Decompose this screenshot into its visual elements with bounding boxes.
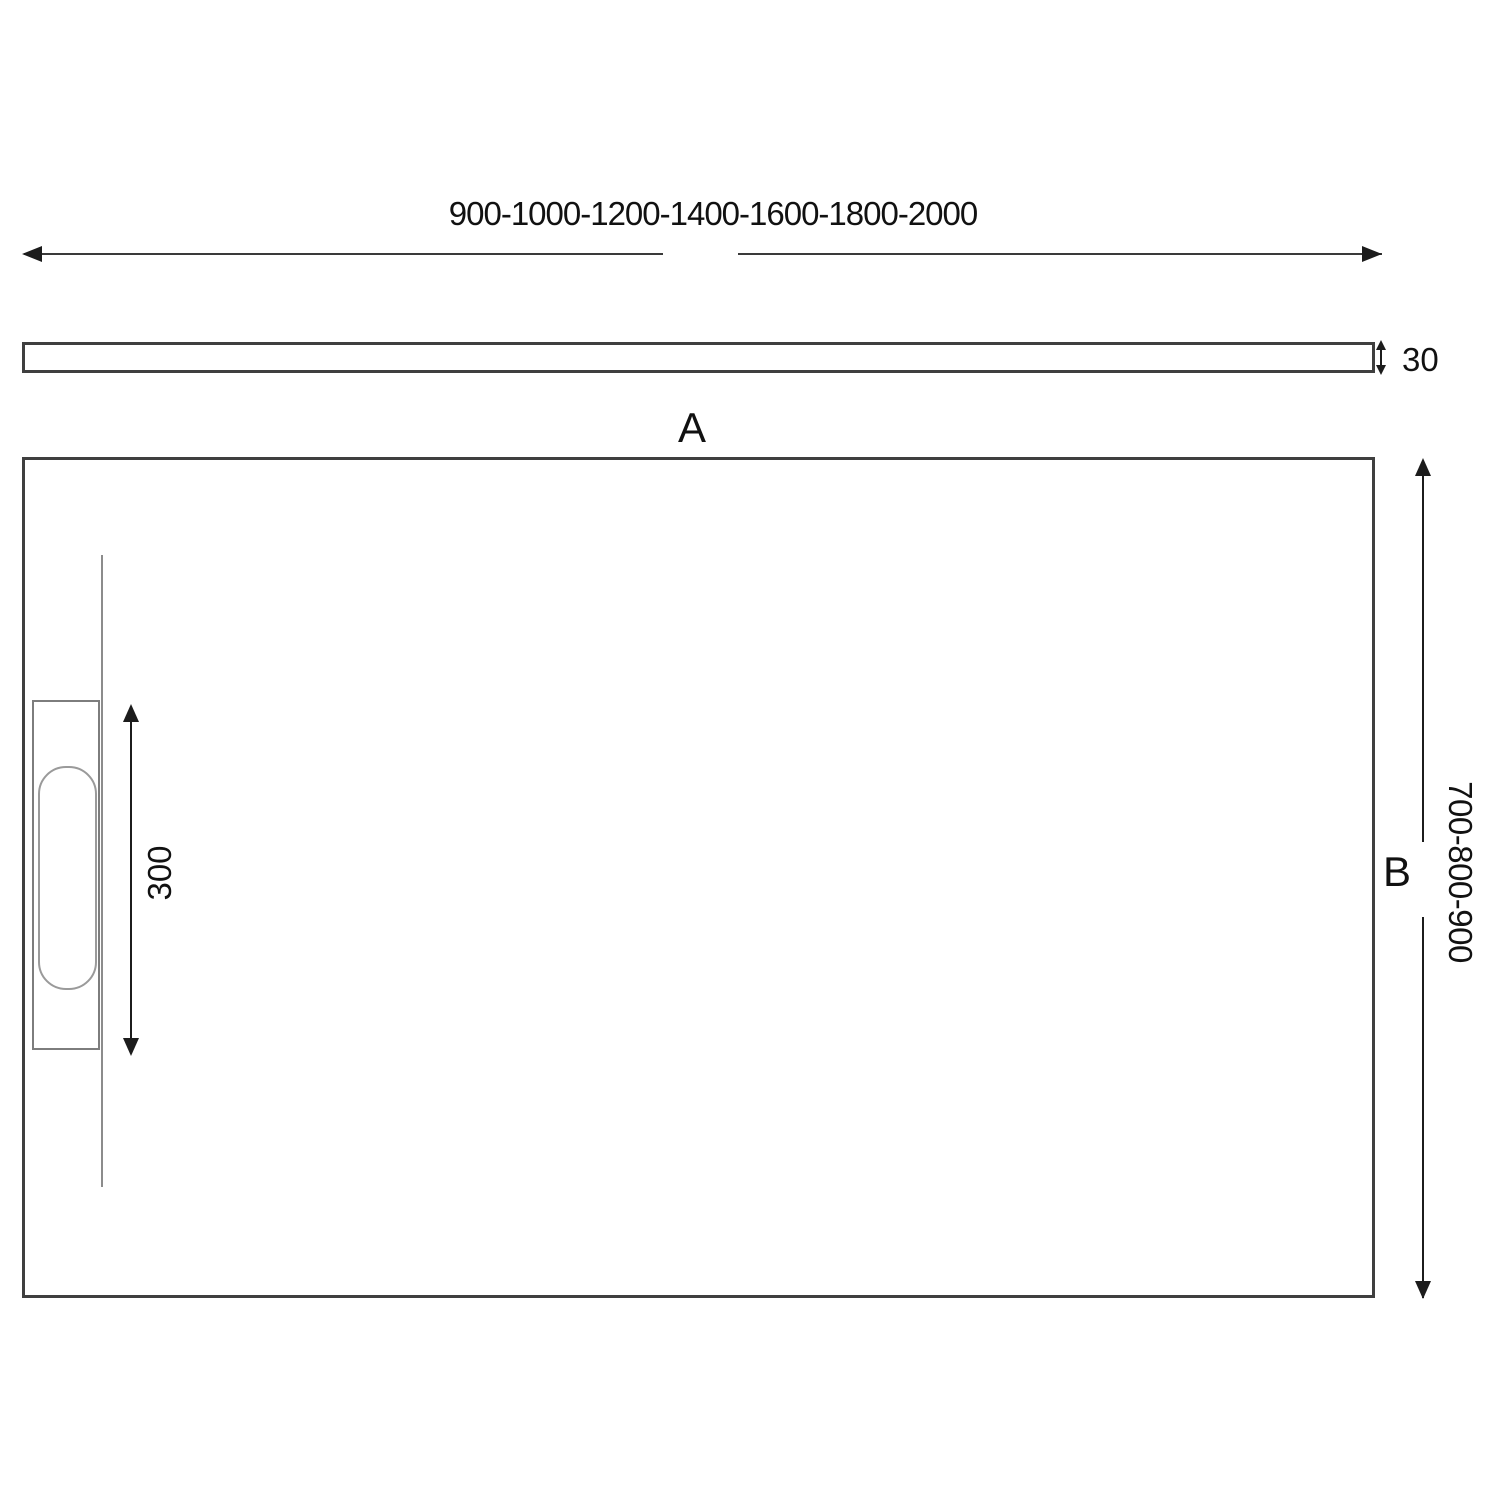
width-dimension-line-bottom-segment	[1422, 917, 1424, 1298]
drain-length-arrow-down-icon	[123, 1038, 139, 1056]
width-arrow-up-icon	[1415, 458, 1431, 476]
length-options-label: 900-1000-1200-1400-1600-1800-2000	[449, 195, 977, 233]
width-dimension-line-top-segment	[1422, 461, 1424, 842]
drain-length-dimension-line	[130, 720, 132, 1040]
thickness-arrow-up-icon	[1376, 340, 1386, 350]
shower-tray-dimension-diagram: 900-1000-1200-1400-1600-1800-2000 30 A 3…	[0, 0, 1500, 1500]
view-b-label: B	[1383, 848, 1411, 896]
drain-slot	[38, 766, 97, 990]
length-dimension-line-right-segment	[738, 253, 1382, 255]
drain-length-label: 300	[141, 845, 179, 900]
length-arrow-left-icon	[22, 246, 42, 262]
thickness-arrow-down-icon	[1376, 365, 1386, 375]
drain-edge-line	[101, 555, 103, 1187]
width-arrow-down-icon	[1415, 1281, 1431, 1299]
tray-side-profile-rect	[22, 342, 1375, 373]
length-arrow-right-icon	[1362, 246, 1382, 262]
drain-length-arrow-up-icon	[123, 704, 139, 722]
view-a-label: A	[678, 404, 706, 452]
length-dimension-line-left-segment	[24, 253, 663, 255]
width-options-label: 700-800-900	[1441, 781, 1479, 963]
tray-plan-rect	[22, 457, 1375, 1298]
thickness-label: 30	[1402, 341, 1439, 379]
